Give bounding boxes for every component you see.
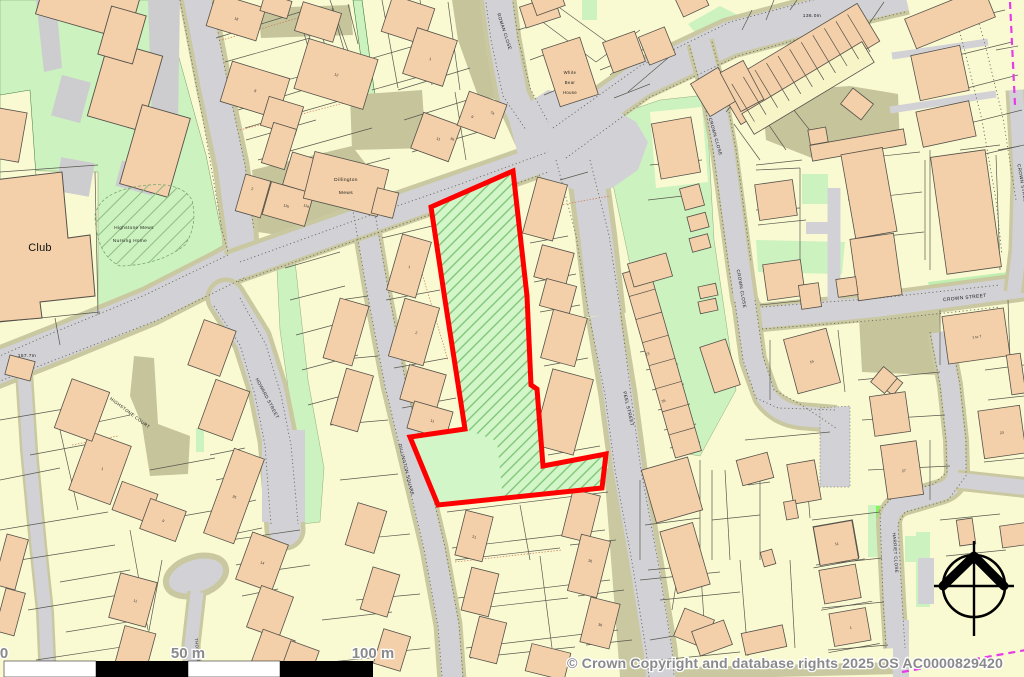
svg-text:27: 27	[902, 469, 907, 474]
svg-text:Dillington: Dillington	[334, 177, 358, 183]
svg-text:23: 23	[1000, 431, 1005, 436]
svg-text:136.0m: 136.0m	[803, 13, 821, 19]
svg-text:© Crown Copyright and database: © Crown Copyright and database rights 20…	[567, 656, 1003, 672]
svg-text:Nursing Home: Nursing Home	[113, 238, 147, 243]
svg-text:Highstone Mews: Highstone Mews	[114, 225, 154, 230]
svg-text:White: White	[564, 70, 577, 75]
svg-text:100 m: 100 m	[352, 645, 395, 662]
svg-text:Mews: Mews	[339, 190, 353, 196]
svg-text:Bear: Bear	[565, 80, 576, 85]
svg-text:0: 0	[0, 645, 8, 662]
svg-text:157.7m: 157.7m	[18, 353, 36, 359]
svg-text:50 m: 50 m	[171, 645, 205, 662]
svg-text:House: House	[563, 90, 577, 95]
svg-text:Club: Club	[28, 242, 51, 254]
svg-text:11: 11	[835, 542, 839, 547]
